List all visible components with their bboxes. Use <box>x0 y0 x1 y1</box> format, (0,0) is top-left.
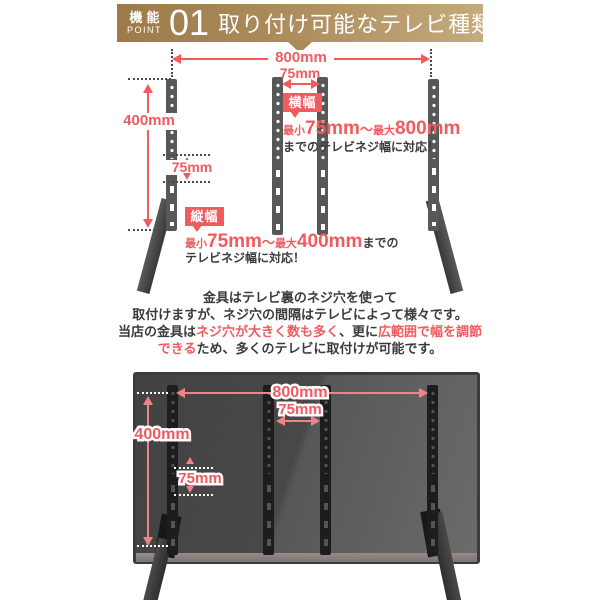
guide-dotted-line <box>163 181 210 183</box>
dimension-label-75mm-left: 75mm <box>166 160 218 175</box>
height-spec-note: テレビネジ幅に対応！ <box>185 250 305 266</box>
arrowhead-right-icon <box>311 79 320 89</box>
tv-bottom-edge <box>136 553 477 562</box>
description-line-3: 当店の金具はネジ穴が大きく数も多く、更に広範囲で幅を調節 <box>0 323 600 340</box>
tv-dimension-label-400mm: 400mm <box>128 426 196 444</box>
max-value: 400mm <box>297 231 363 252</box>
guide-dotted-line <box>430 49 432 77</box>
tv-bracket-bar-right <box>427 385 438 555</box>
bracket-holes <box>429 389 437 474</box>
feature-kanji-label: 機能 <box>130 11 164 24</box>
feature-point-label: 機能 POINT <box>127 11 162 35</box>
arrowhead-right-icon <box>419 388 428 398</box>
guide-dotted-line-white <box>137 392 168 394</box>
tilde: 〜 <box>360 122 373 137</box>
tv-dimension-arrow-400mm <box>142 396 154 546</box>
product-feature-image: 機能 POINT 01 取り付け可能なテレビ種類が多い 800mm 75mm <box>0 0 600 600</box>
arrow-shaft <box>282 420 314 422</box>
arrowhead-right-icon <box>421 54 430 64</box>
width-spec-note: までのテレビネジ幅に対応！ <box>283 139 439 155</box>
arrow-shaft <box>147 402 149 540</box>
bracket-bar-mid-left <box>272 77 283 235</box>
bracket-slots <box>324 485 328 550</box>
feature-banner: 機能 POINT 01 取り付け可能なテレビ種類が多い <box>117 4 483 42</box>
arrowhead-up-icon <box>186 457 194 464</box>
bracket-holes <box>265 389 273 474</box>
tv-bracket-bar-left <box>167 385 178 555</box>
max-label: 最大 <box>275 238 297 250</box>
guide-dotted-line <box>163 154 210 156</box>
tv-bracket-bar-mid-left <box>263 385 274 555</box>
height-badge: 縦幅 <box>185 207 224 226</box>
bracket-slots <box>267 485 271 550</box>
description-line-2: 取付けますが、ネジ穴の間隔はテレビによって様々です。 <box>0 306 600 323</box>
min-label: 最小 <box>185 238 207 250</box>
tv-dimension-label-75mm-left: 75mm <box>174 471 226 488</box>
note-inline: までの <box>362 236 398 250</box>
feature-number: 01 <box>169 6 209 40</box>
dimension-arrow-75mm-top <box>282 78 320 89</box>
guide-dotted-line <box>128 229 171 231</box>
bracket-bar-right <box>428 79 439 231</box>
bracket-slots <box>432 168 436 226</box>
bracket-slots <box>321 170 325 230</box>
width-spec-line: 最小75mm〜最大800mm <box>283 119 460 138</box>
height-spec-line: 最小75mm〜最大400mmまでの <box>185 232 398 251</box>
tv-dimension-label-800mm: 800mm <box>260 384 340 402</box>
arrowhead-down-icon <box>143 537 153 546</box>
guide-dotted-line <box>128 78 171 80</box>
description-line-1: 金具はテレビ裏のネジ穴を使って <box>0 289 600 306</box>
min-value: 75mm <box>207 231 262 252</box>
tilde: 〜 <box>262 235 275 250</box>
description-paragraph: 金具はテレビ裏のネジ穴を使って 取付けますが、ネジ穴の間隔はテレビによって様々で… <box>0 289 600 357</box>
feature-title: 取り付け可能なテレビ種類が多い <box>218 7 563 39</box>
description-line-4: できるため、多くのテレビに取付けが可能です。 <box>0 340 600 357</box>
dimension-arrow-400mm <box>142 84 153 228</box>
bracket-slots <box>170 168 174 226</box>
min-label: 最小 <box>283 125 305 137</box>
tv-dimension-label-75mm-top: 75mm <box>276 402 324 419</box>
arrowhead-down-icon <box>143 219 153 228</box>
dimension-label-400mm: 400mm <box>116 113 182 130</box>
max-label: 最大 <box>373 125 395 137</box>
arrowhead-down-icon <box>183 173 191 180</box>
bracket-slots <box>431 485 435 550</box>
min-value: 75mm <box>305 118 360 139</box>
max-value: 800mm <box>395 118 461 139</box>
feature-en-label: POINT <box>127 26 162 35</box>
bracket-holes <box>274 81 282 160</box>
bracket-slots <box>276 170 280 230</box>
guide-dotted-line-white <box>174 494 213 496</box>
width-badge: 横幅 <box>283 93 322 112</box>
guide-dotted-line-white <box>174 467 213 469</box>
arrow-shaft <box>147 90 149 222</box>
